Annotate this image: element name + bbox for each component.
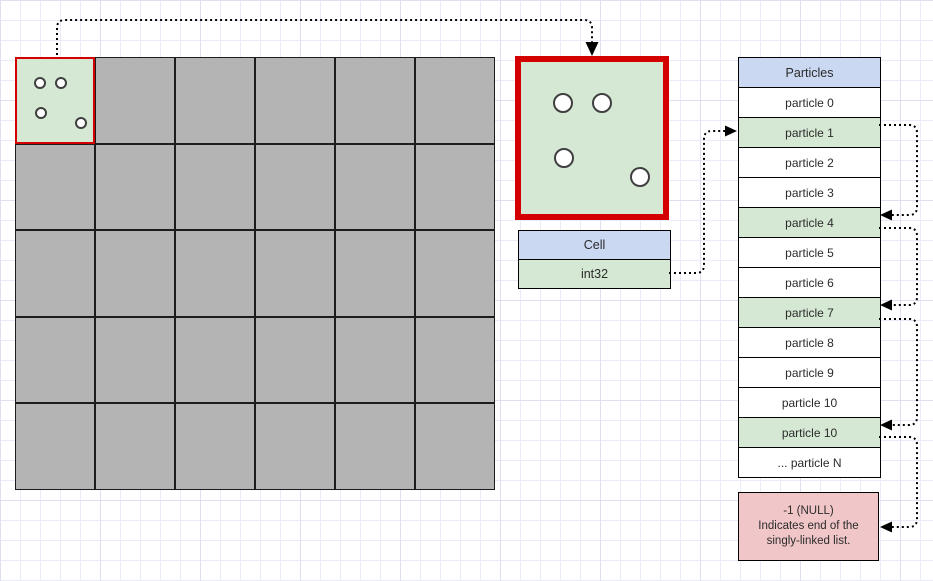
grid-cell-r0c2 [175, 57, 255, 144]
null-box: -1 (NULL) Indicates end of the singly-li… [738, 492, 879, 561]
null-box-line: -1 (NULL) [783, 504, 833, 519]
particle-row-1: particle 1 [739, 118, 880, 148]
null-box-line: Indicates end of the [758, 519, 858, 534]
zoomed-cell [515, 56, 669, 220]
arrowhead-left-icon [880, 210, 892, 221]
grid-cell-r1c2 [175, 144, 255, 231]
null-box-line: singly-linked list. [767, 534, 851, 549]
cell-struct-field: int32 [519, 259, 670, 288]
grid-cell-r3c5 [415, 317, 495, 404]
particle-row-10: particle 10 [739, 388, 880, 418]
particles-table-title: Particles [739, 58, 880, 88]
connector-particle-10-to-null [879, 437, 917, 527]
grid-cell-r4c5 [415, 403, 495, 490]
zoom-particle-0 [553, 93, 573, 113]
particle-row-11: particle 10 [739, 418, 880, 448]
grid-cell-r2c0 [15, 230, 95, 317]
grid-cell-r2c1 [95, 230, 175, 317]
particle-row-0: particle 0 [739, 88, 880, 118]
grid-cell-r2c2 [175, 230, 255, 317]
particle-row-3: particle 3 [739, 178, 880, 208]
particles-rows: particle 0particle 1particle 2particle 3… [739, 88, 880, 477]
particle-row-12: ... particle N [739, 448, 880, 477]
zoom-particle-2 [554, 148, 574, 168]
grid-cell-r0c0 [15, 57, 95, 144]
arrowhead-right-icon [725, 126, 737, 137]
cell-struct-table: Cell int32 [518, 230, 671, 289]
grid-cell-r1c3 [255, 144, 335, 231]
grid-cell-r1c4 [335, 144, 415, 231]
particle-row-2: particle 2 [739, 148, 880, 178]
grid-cell-r2c5 [415, 230, 495, 317]
grid-cell-r3c1 [95, 317, 175, 404]
connector-particle-4-to-particle-7 [879, 228, 917, 305]
grid-cell-r3c4 [335, 317, 415, 404]
arrowhead-down-icon [586, 42, 599, 56]
diagram-canvas: Cell int32 Particles particle 0particle … [0, 0, 933, 581]
connector-particle-1-to-particle-4 [879, 125, 917, 215]
grid-particle-0 [34, 77, 46, 89]
grid-cell-r4c0 [15, 403, 95, 490]
grid-cell-r1c0 [15, 144, 95, 231]
arrowhead-left-icon [880, 300, 892, 311]
particle-row-8: particle 8 [739, 328, 880, 358]
grid-cell-r3c2 [175, 317, 255, 404]
cell-struct-title: Cell [519, 231, 670, 259]
particle-row-7: particle 7 [739, 298, 880, 328]
grid-cell-r2c4 [335, 230, 415, 317]
grid-particle-1 [55, 77, 67, 89]
spatial-grid [15, 57, 495, 490]
arrowhead-left-icon [880, 420, 892, 431]
grid-cell-r4c4 [335, 403, 415, 490]
grid-cell-r4c3 [255, 403, 335, 490]
particle-row-5: particle 5 [739, 238, 880, 268]
connector-grid-cell-to-zoom-cell [57, 20, 592, 55]
grid-cell-r2c3 [255, 230, 335, 317]
grid-cell-r4c1 [95, 403, 175, 490]
grid-cell-r4c2 [175, 403, 255, 490]
particle-row-6: particle 6 [739, 268, 880, 298]
grid-cell-r0c4 [335, 57, 415, 144]
grid-cell-r0c1 [95, 57, 175, 144]
grid-cell-r0c5 [415, 57, 495, 144]
grid-particle-3 [75, 117, 87, 129]
connector-int32-to-particle-1 [669, 131, 725, 273]
particle-row-9: particle 9 [739, 358, 880, 388]
grid-cell-r3c0 [15, 317, 95, 404]
zoom-particle-3 [630, 167, 650, 187]
particle-row-4: particle 4 [739, 208, 880, 238]
grid-particle-2 [35, 107, 47, 119]
grid-cell-r0c3 [255, 57, 335, 144]
grid-cell-r1c1 [95, 144, 175, 231]
particles-table: Particles particle 0particle 1particle 2… [738, 57, 881, 478]
grid-cell-r1c5 [415, 144, 495, 231]
connector-particle-7-to-particle-10 [879, 319, 917, 425]
arrowhead-left-icon [880, 522, 892, 533]
grid-cell-r3c3 [255, 317, 335, 404]
zoom-particle-1 [592, 93, 612, 113]
